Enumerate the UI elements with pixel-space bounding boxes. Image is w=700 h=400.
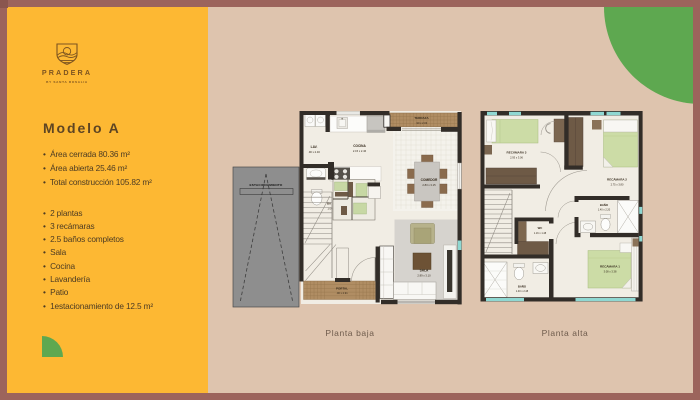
svg-text:COCINA: COCINA <box>353 144 366 148</box>
svg-text:.90 x 2.91: .90 x 2.91 <box>336 291 348 295</box>
svg-text:PORTAL: PORTAL <box>336 287 348 291</box>
svg-text:TERRAZA: TERRAZA <box>414 116 429 120</box>
svg-text:ESTACIONAMIENTO: ESTACIONAMIENTO <box>250 183 283 187</box>
svg-text:2.93 x 3.06: 2.93 x 3.06 <box>510 156 523 160</box>
svg-text:.90 x 2.03: .90 x 2.03 <box>416 121 428 125</box>
svg-text:.90 x 2.46: .90 x 2.46 <box>308 150 320 154</box>
svg-text:3.08 x 3.38: 3.08 x 3.38 <box>604 270 617 274</box>
svg-text:RECÁMARA 2: RECÁMARA 2 <box>607 177 627 182</box>
svg-text:2.15 x 2.46: 2.15 x 2.46 <box>353 149 367 153</box>
svg-text:WC: WC <box>538 226 543 230</box>
svg-text:1.40 x 2.48: 1.40 x 2.48 <box>516 290 529 293</box>
svg-text:2.75 x 3.80: 2.75 x 3.80 <box>611 183 624 187</box>
svg-text:1.40 x 2.20: 1.40 x 2.20 <box>598 209 611 212</box>
svg-text:LAV.: LAV. <box>311 145 318 149</box>
svg-text:RECÁMARA 3: RECÁMARA 3 <box>507 150 527 155</box>
svg-text:RECÁMARA 1: RECÁMARA 1 <box>600 264 620 269</box>
svg-text:COMEDOR: COMEDOR <box>421 178 438 182</box>
svg-text:2.89 x 3.10: 2.89 x 3.10 <box>417 274 431 278</box>
svg-text:SALA: SALA <box>420 269 429 273</box>
svg-text:BA: BA <box>327 202 331 206</box>
svg-text:BAÑO: BAÑO <box>600 202 609 207</box>
svg-text:BAÑO: BAÑO <box>518 284 527 289</box>
svg-text:1.16 x 1.48: 1.16 x 1.48 <box>534 232 547 235</box>
svg-text:2.83 x 3.15: 2.83 x 3.15 <box>422 183 436 187</box>
